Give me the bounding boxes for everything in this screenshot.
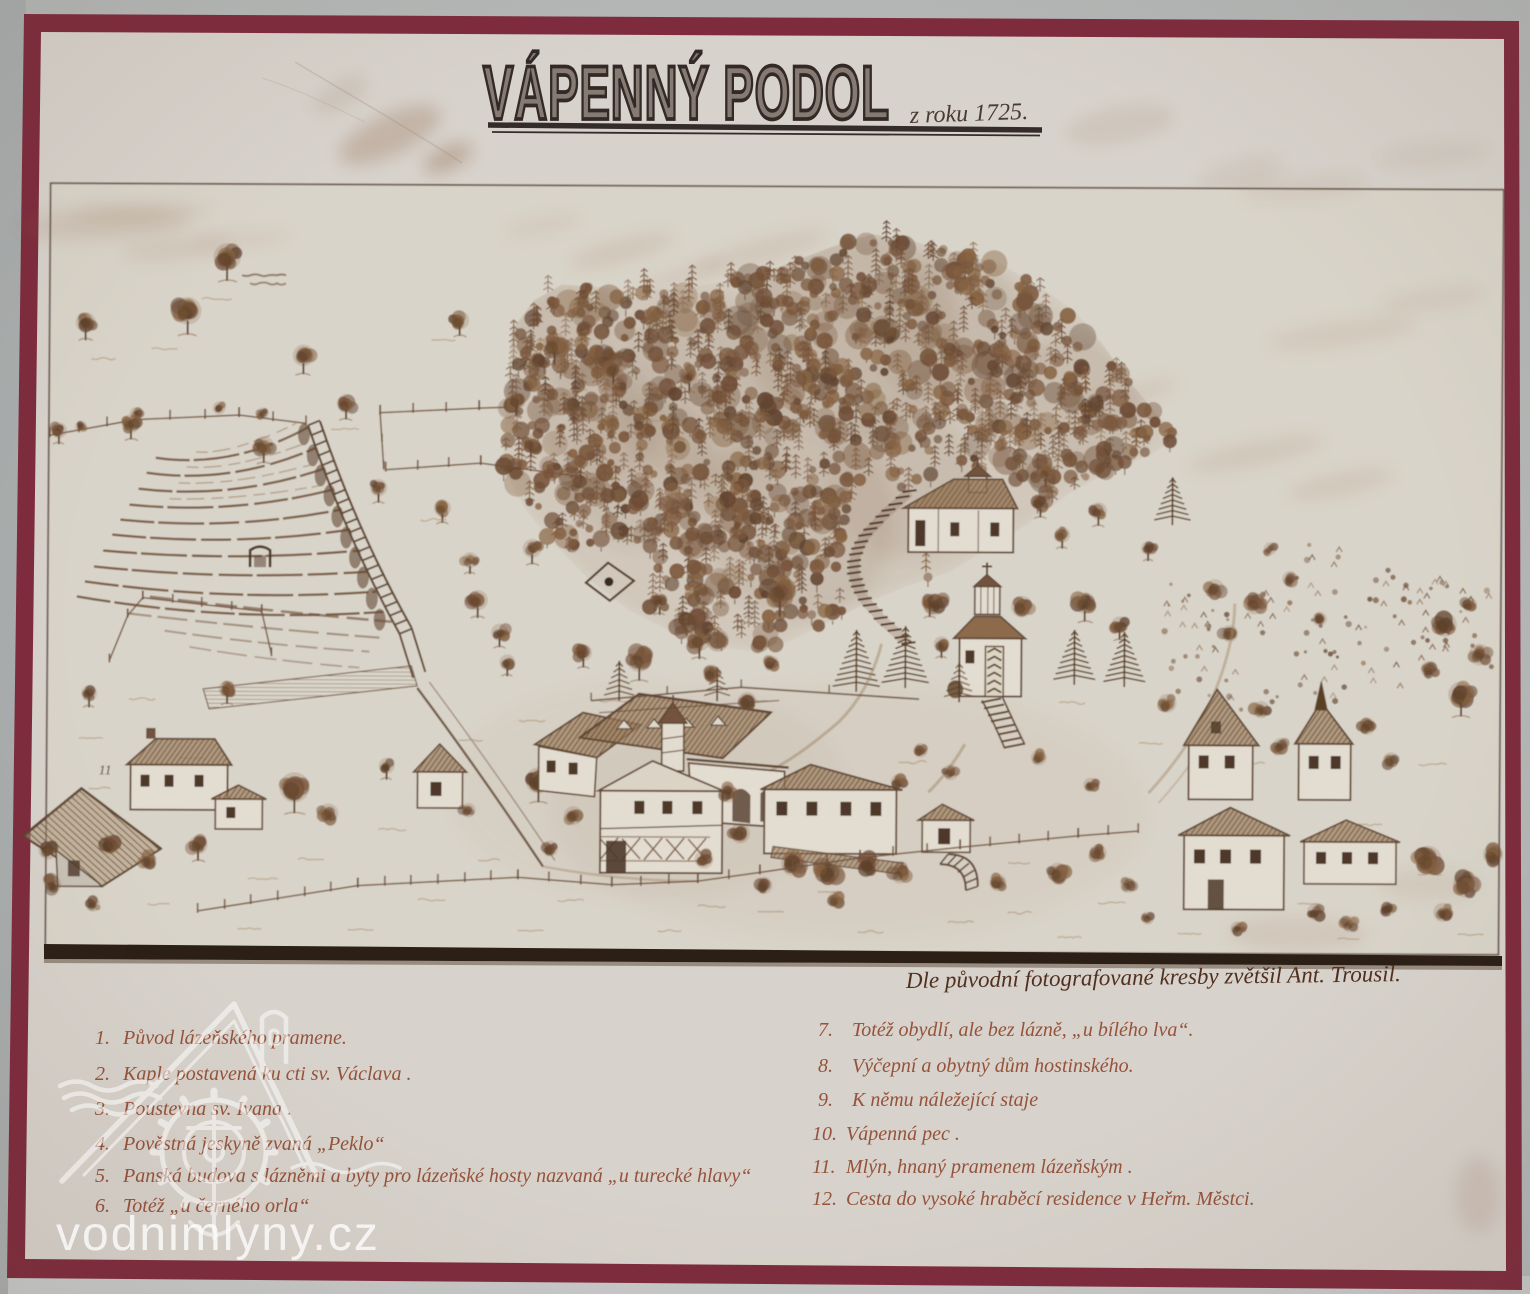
svg-text:vodnimlyny.cz: vodnimlyny.cz <box>56 1208 380 1261</box>
